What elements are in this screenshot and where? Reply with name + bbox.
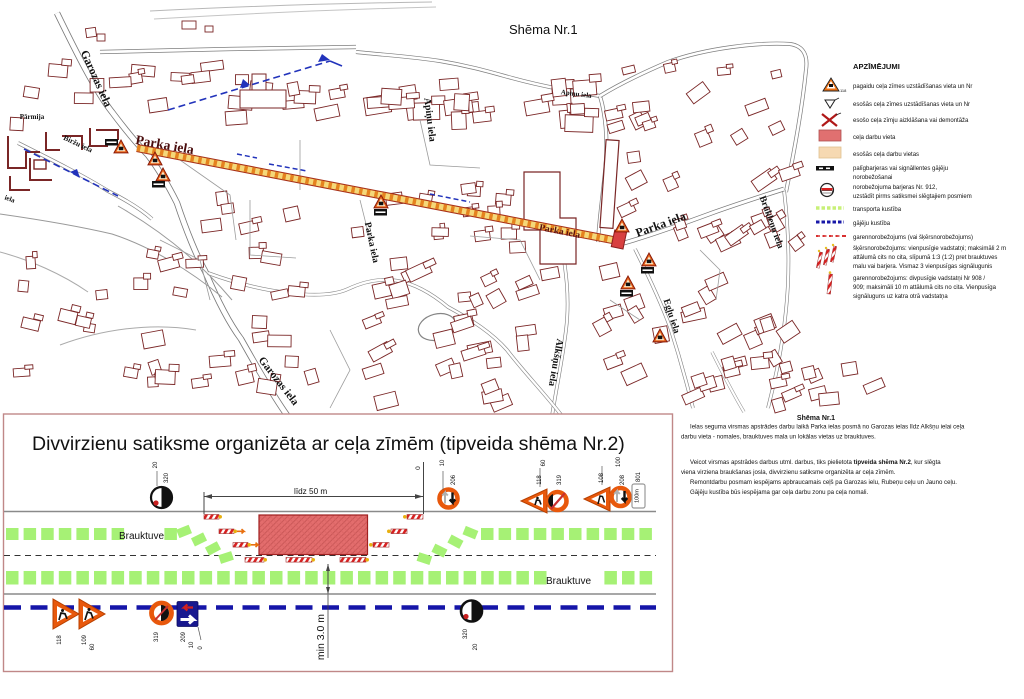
svg-text:118: 118 xyxy=(57,635,63,645)
svg-text:garennorobežojums (vai šķērsno: garennorobežojums (vai šķērsnorobežojums… xyxy=(853,235,973,241)
svg-text:320: 320 xyxy=(463,628,469,639)
svg-text:malu vai barjera. Vismaz 3 vie: malu vai barjera. Vismaz 3 vienpusīgas s… xyxy=(853,264,992,270)
svg-text:garennorobežojums: divpusīgie: garennorobežojums: divpusīgie vadstatņi … xyxy=(853,276,985,282)
svg-text:Brauktuve: Brauktuve xyxy=(546,576,591,587)
svg-text:APZĪMĒJUMI: APZĪMĒJUMI xyxy=(853,62,900,71)
svg-text:109: 109 xyxy=(82,634,88,645)
svg-text:Brauktuve: Brauktuve xyxy=(119,531,164,542)
svg-text:pagaidu ceļa zīmes uzstādīšana: pagaidu ceļa zīmes uzstādīšanas vieta un… xyxy=(853,84,972,90)
svg-text:Divvirzienu satiksme organizēt: Divvirzienu satiksme organizēta ar ceļa … xyxy=(32,433,625,455)
svg-text:norobežošanai: norobežošanai xyxy=(853,175,892,181)
svg-text:60: 60 xyxy=(90,643,96,650)
svg-text:801: 801 xyxy=(636,471,642,482)
svg-text:esošās ceļa zīmes uzstādīšanas: esošās ceļa zīmes uzstādīšanas vieta un … xyxy=(853,102,970,108)
svg-text:signāluguns uz katra otrā vads: signāluguns uz katra otrā vadstatņa xyxy=(853,294,948,300)
svg-text:viena virziena braukšanas josl: viena virziena braukšanas josla, divvirz… xyxy=(681,469,896,476)
svg-text:līdz 50 m: līdz 50 m xyxy=(294,487,327,496)
svg-text:transporta kustība: transporta kustība xyxy=(853,207,902,213)
svg-text:319: 319 xyxy=(154,631,160,642)
svg-text:100: 100 xyxy=(616,456,622,467)
svg-text:šķērsnorobežojums: vienpusīgie: šķērsnorobežojums: vienpusīgie vadstatņi… xyxy=(853,246,1006,252)
svg-text:60: 60 xyxy=(541,459,547,466)
svg-text:100m: 100m xyxy=(635,489,641,503)
svg-text:320: 320 xyxy=(164,472,170,483)
svg-text:attālumā cits no cita, slīpumā: attālumā cits no cita, slīpumā 1:3 (1:2)… xyxy=(853,255,997,261)
svg-text:Pārmija: Pārmija xyxy=(20,113,45,121)
svg-text:norobežojuma barjeras Nr. 912,: norobežojuma barjeras Nr. 912, xyxy=(853,185,937,191)
svg-text:gājēju kustība: gājēju kustība xyxy=(853,221,891,227)
svg-text:0: 0 xyxy=(415,466,422,470)
svg-text:palīgbarjeras vai signāllentes: palīgbarjeras vai signāllentes gājēju xyxy=(853,166,948,172)
svg-text:206: 206 xyxy=(451,474,457,485)
svg-text:uzstādīt pirms satiksmei slēgt: uzstādīt pirms satiksmei slēgtajiem posm… xyxy=(853,194,972,200)
svg-text:319: 319 xyxy=(557,474,563,485)
svg-text:esošās ceļa darbu vietas: esošās ceļa darbu vietas xyxy=(853,152,919,158)
svg-text:10: 10 xyxy=(440,459,446,466)
svg-text:Shēma Nr.1: Shēma Nr.1 xyxy=(509,22,578,37)
svg-text:208: 208 xyxy=(620,474,626,485)
svg-text:esošo ceļa zīmju aizklāšana va: esošo ceļa zīmju aizklāšana vai demontāž… xyxy=(853,118,969,124)
svg-text:Gājēju kustība būs iespējama g: Gājēju kustība būs iespējama gar ceļa da… xyxy=(690,489,868,496)
svg-text:Remontdarbu posmam iespējams a: Remontdarbu posmam iespējams apbraucamai… xyxy=(690,479,957,486)
svg-text:Veicot virsmas apstrādes darbu: Veicot virsmas apstrādes darbus utml. da… xyxy=(690,459,941,466)
svg-text:20: 20 xyxy=(153,461,159,468)
svg-text:209: 209 xyxy=(181,631,187,642)
svg-text:darbu vieta - nomales, brauktu: darbu vieta - nomales, brauktuves mala u… xyxy=(681,434,876,441)
svg-text:Ielas seguma virsmas apstrādes: Ielas seguma virsmas apstrādes darbu lai… xyxy=(690,424,965,431)
svg-text:min 3.0 m: min 3.0 m xyxy=(315,614,327,660)
svg-text:909; maksimāli 10 m attālumā c: 909; maksimāli 10 m attālumā cits no cit… xyxy=(853,285,997,291)
svg-text:108: 108 xyxy=(599,472,605,483)
svg-text:Shēma Nr.1: Shēma Nr.1 xyxy=(797,415,835,422)
svg-text:20: 20 xyxy=(473,643,479,650)
svg-text:118: 118 xyxy=(840,88,847,93)
svg-text:ceļa darbu vieta: ceļa darbu vieta xyxy=(853,135,896,141)
svg-text:10: 10 xyxy=(189,641,195,648)
svg-text:118: 118 xyxy=(537,475,543,485)
